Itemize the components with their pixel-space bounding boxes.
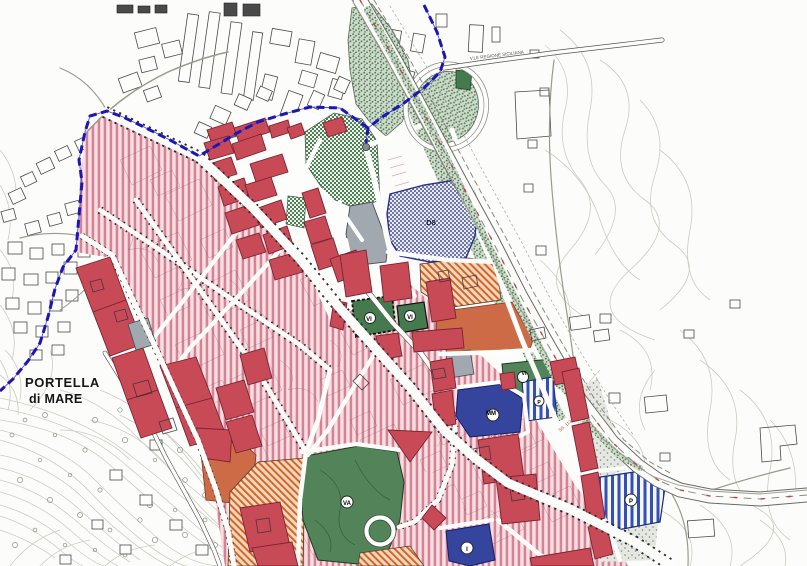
svg-text:di MARE: di MARE [29, 392, 83, 406]
svg-text:D8: D8 [426, 218, 436, 227]
svg-text:VI: VI [407, 315, 413, 321]
svg-text:VL. PO: VL. PO [490, 433, 505, 438]
svg-text:MM: MM [486, 411, 496, 417]
svg-text:VI: VI [366, 317, 372, 323]
svg-text:P: P [629, 499, 633, 505]
svg-text:VA: VA [343, 501, 352, 507]
svg-text:PORTELLA: PORTELLA [25, 375, 100, 390]
svg-text:VI: VI [521, 371, 527, 377]
